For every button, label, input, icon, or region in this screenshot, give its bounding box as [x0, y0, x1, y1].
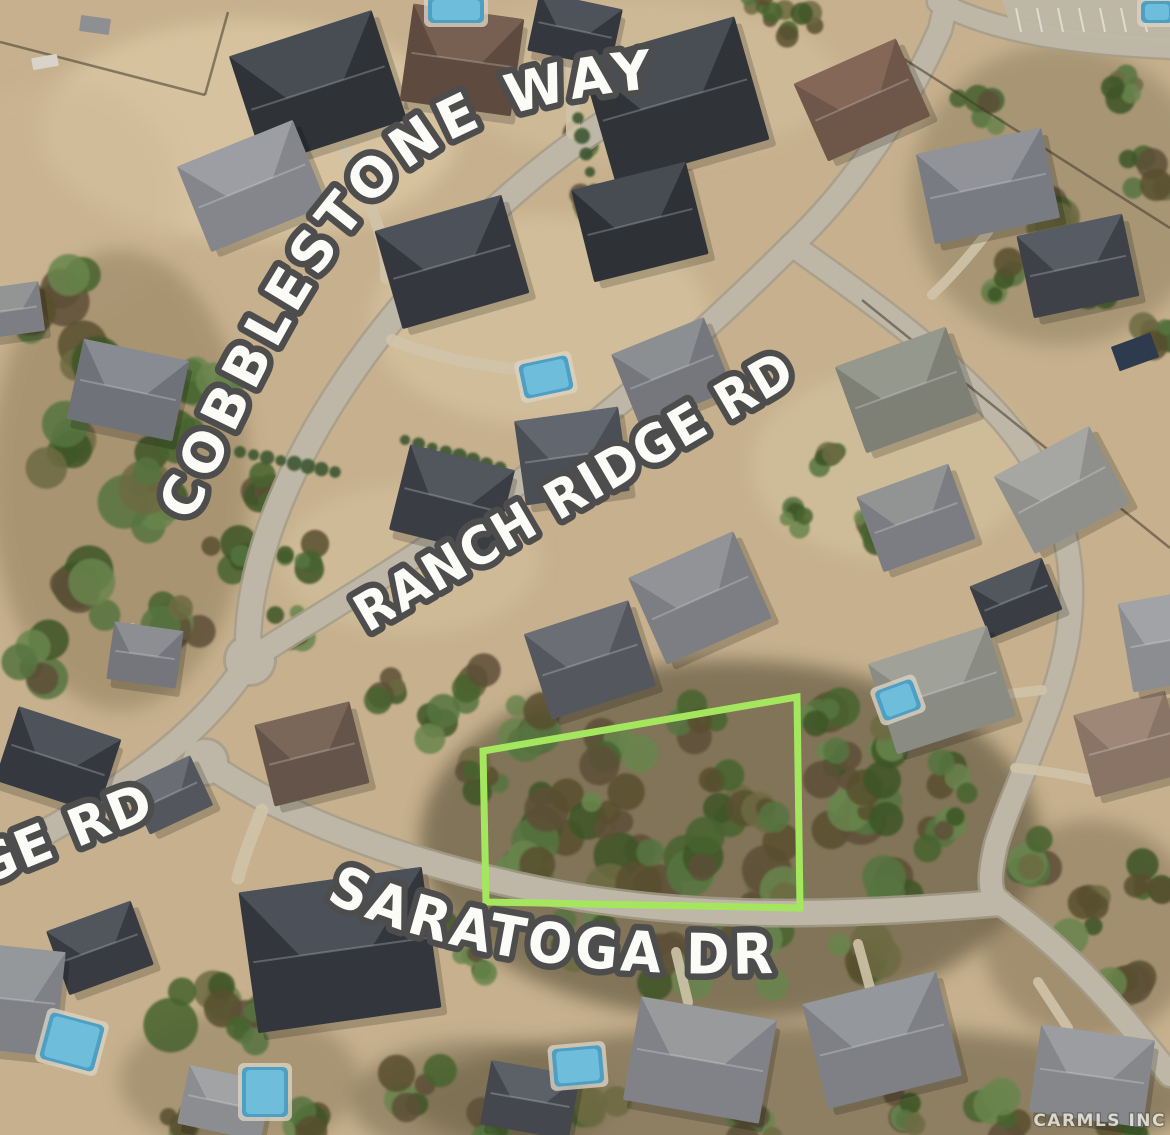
pool	[238, 1063, 292, 1121]
house-roof	[0, 280, 51, 346]
aerial-map: COBBLESTONE WAY RANCH RIDGE RD GE RD SAR…	[0, 0, 1170, 1135]
pool	[1137, 0, 1170, 27]
watermark: CARMLS INC	[1033, 1111, 1166, 1131]
pool	[547, 1041, 609, 1092]
pool	[424, 0, 488, 27]
house-roof	[105, 621, 188, 697]
